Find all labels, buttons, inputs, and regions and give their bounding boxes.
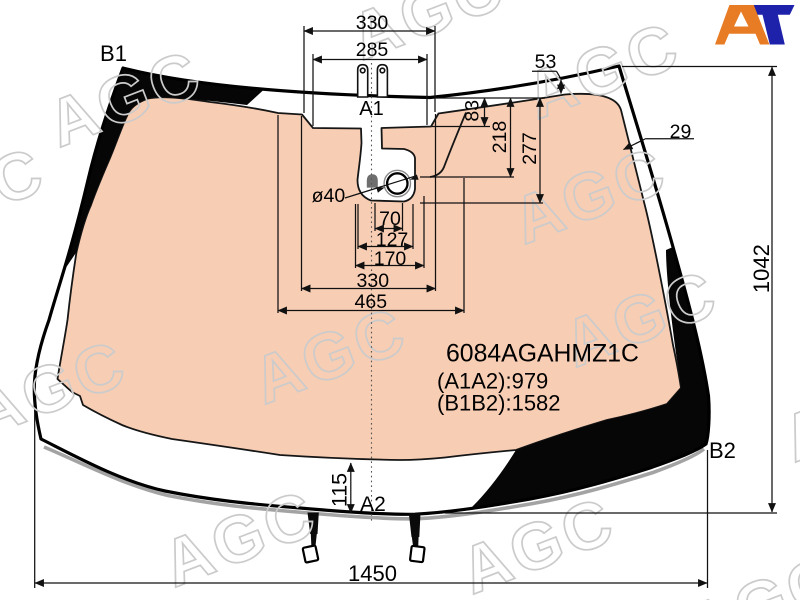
svg-text:A1: A1 xyxy=(359,98,383,120)
svg-text:170: 170 xyxy=(374,248,407,270)
svg-text:ø40: ø40 xyxy=(312,185,346,207)
svg-text:A2: A2 xyxy=(360,493,386,516)
svg-text:1450: 1450 xyxy=(348,561,397,586)
svg-text:B2: B2 xyxy=(709,438,736,463)
svg-text:29: 29 xyxy=(670,121,692,143)
svg-text:70: 70 xyxy=(379,208,401,230)
svg-text:465: 465 xyxy=(355,291,388,313)
svg-text:1042: 1042 xyxy=(749,244,774,293)
svg-text:115: 115 xyxy=(327,473,351,507)
svg-text:6084AGAHMZ1C: 6084AGAHMZ1C xyxy=(446,341,639,368)
svg-text:B1: B1 xyxy=(100,41,127,66)
svg-text:330: 330 xyxy=(357,270,390,292)
svg-text:218: 218 xyxy=(489,121,511,154)
svg-text:285: 285 xyxy=(356,39,389,61)
svg-text:(B1B2):1582: (B1B2):1582 xyxy=(437,391,561,416)
svg-text:53: 53 xyxy=(535,51,557,73)
svg-text:277: 277 xyxy=(519,132,541,165)
svg-text:83: 83 xyxy=(461,100,483,122)
svg-text:330: 330 xyxy=(356,12,389,34)
